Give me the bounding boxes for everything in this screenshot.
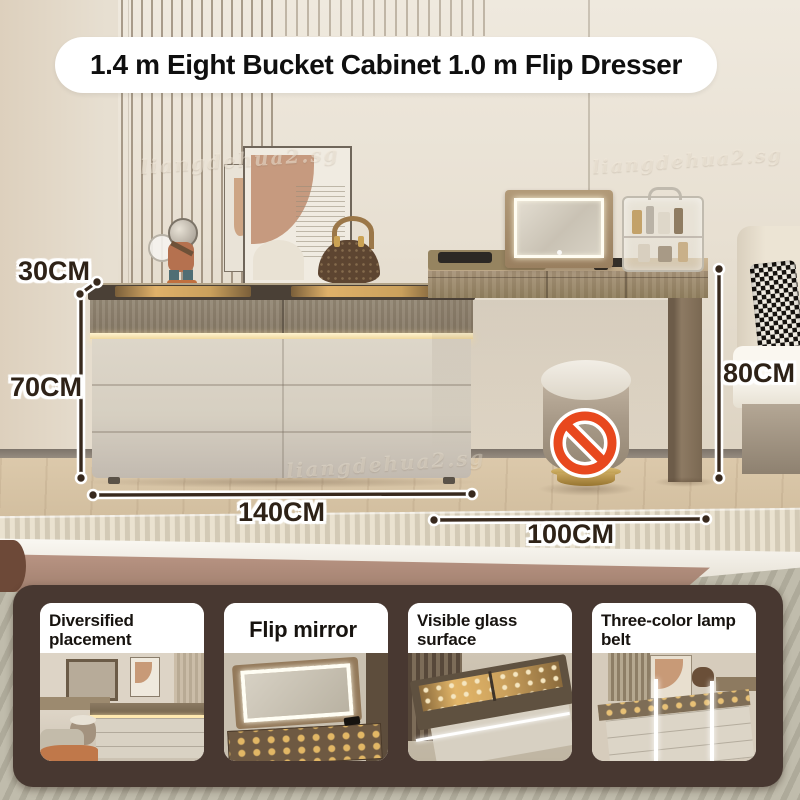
stool-cushion [541, 360, 631, 400]
houndstooth-pillow [749, 260, 800, 356]
feature-card-visible-glass-surface: Visible glass surface [408, 603, 572, 761]
feature-label: Visible glass surface [417, 611, 566, 649]
cosmetics-organizer [622, 196, 704, 272]
desk-tray [438, 252, 492, 263]
mirror-touch-button [557, 250, 562, 255]
measurement-desk-height: 80CM [723, 358, 795, 389]
page-title: 1.4 m Eight Bucket Cabinet 1.0 m Flip Dr… [90, 49, 682, 81]
astronaut-figurine [156, 218, 198, 286]
product-image: liangdehua2.sg liangdehua2.sg liangdehua… [0, 0, 800, 800]
eight-bucket-cabinet [88, 283, 475, 481]
feature-label: Three-color lamp belt [601, 611, 750, 649]
feature-card-diversified-placement: Diversified placement [40, 603, 204, 761]
glass-top [88, 283, 475, 300]
feature-card-three-color-lamp-belt: Three-color lamp belt [592, 603, 756, 761]
lit-compartment [115, 286, 251, 297]
wall-slat-panel-top [276, 0, 492, 36]
measurement-cabinet-depth: 30CM [18, 256, 90, 287]
feature-photo-flip-mirror [224, 653, 388, 761]
desk-leg-shadow [654, 477, 716, 487]
feature-panel: Diversified placement Flip mirror [13, 585, 783, 787]
drawer-body [92, 339, 471, 478]
title-banner: 1.4 m Eight Bucket Cabinet 1.0 m Flip Dr… [55, 37, 717, 93]
measurement-cabinet-width: 140CM [238, 497, 325, 528]
feature-photo-three-color-lamp-belt [592, 653, 756, 761]
desk-leg [668, 298, 702, 482]
feature-photo-visible-glass-surface [408, 653, 572, 761]
no-sitting-icon [549, 407, 621, 479]
measurement-drawer-height: 70CM [10, 372, 82, 403]
feature-label: Flip mirror [249, 618, 357, 643]
mirror-glass [514, 198, 604, 258]
handbag [318, 228, 380, 284]
feature-label: Diversified placement [49, 611, 198, 649]
wood-drawer-band [90, 300, 473, 333]
feature-photo-diversified-placement [40, 653, 204, 761]
feature-card-flip-mirror: Flip mirror [224, 603, 388, 761]
flip-mirror [505, 190, 613, 268]
blanket-fold [0, 540, 26, 592]
lit-compartment [291, 286, 438, 297]
bed-base [742, 404, 800, 474]
measurement-desk-width: 100CM [527, 519, 614, 550]
